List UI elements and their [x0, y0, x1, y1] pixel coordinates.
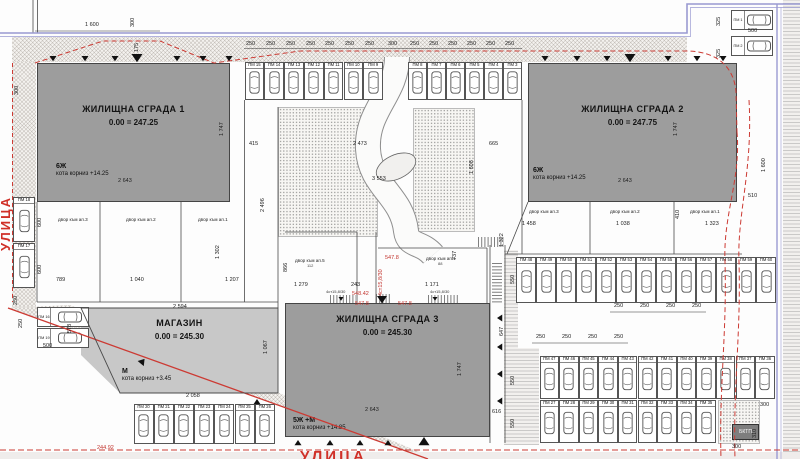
parking-stall-label: ПМ 41: [658, 357, 676, 363]
car-icon: [582, 364, 595, 394]
parking-stall: ПМ 52: [596, 257, 616, 303]
parking-stall: ПМ 16: [37, 307, 89, 327]
dimension-label: 410: [675, 210, 681, 219]
survey-elevation-mark: 4ст15,8/30: [378, 269, 384, 296]
parking-stall: ПМ 33: [657, 400, 677, 443]
parking-stall-label: ПМ 46: [560, 357, 578, 363]
dimension-label: 250: [410, 41, 419, 47]
dimension-label: 1 038: [616, 221, 630, 227]
car-icon: [620, 265, 633, 298]
parking-stall-label: ПМ 21: [155, 405, 173, 411]
shop-cornice-note: Мкота корниз +3.45: [122, 368, 171, 384]
parking-stall: ПМ 14: [264, 62, 284, 100]
parking-stall-label: ПМ 50: [557, 258, 575, 264]
parking-stall-label: ПМ 37: [737, 357, 755, 363]
yard-label: двор към ап.3: [58, 217, 88, 222]
shop-title: МАГАЗИН: [81, 318, 278, 328]
car-icon: [700, 265, 713, 298]
dimension-label: 550: [510, 376, 516, 385]
car-icon: [602, 364, 615, 394]
dimension-label: 2 473: [353, 141, 367, 147]
stair-spec-label: 4ст15,8/30: [430, 289, 449, 294]
parking-stall-label: ПМ 26: [256, 405, 274, 411]
yard-label: двор към ап.2: [610, 209, 640, 214]
dimension-label: 250: [246, 41, 255, 47]
dimension-label: 1 302: [215, 245, 221, 259]
parking-stall-label: ПМ 20: [135, 405, 153, 411]
building-1-level: 0.00 = 247.25: [38, 118, 229, 127]
parking-stall-label: ПМ 54: [637, 258, 655, 264]
car-icon: [347, 70, 360, 95]
car-icon: [520, 265, 533, 298]
parking-stall: ПМ 20: [134, 404, 154, 444]
car-icon: [238, 412, 251, 439]
parking-stall: ПМ 46: [559, 356, 579, 399]
parking-stall-label: ПМ 12: [305, 63, 323, 69]
parking-stall: ПМ 7: [427, 62, 446, 100]
dimension-label: 665: [489, 141, 498, 147]
dimension-label: 250: [614, 334, 623, 340]
car-icon: [52, 331, 88, 345]
building-shop: МАГАЗИН 0.00 = 245.30 Мкота корниз +3.45: [81, 308, 278, 393]
parking-stall-label: ПМ 56: [677, 258, 695, 264]
dimension-label: 250: [18, 319, 24, 328]
dimension-label: 2 058: [186, 393, 200, 399]
car-icon: [700, 364, 713, 394]
parking-stall: ПМ 47: [540, 356, 560, 399]
parking-stall: ПМ 44: [598, 356, 618, 399]
car-icon: [468, 70, 481, 95]
parking-stall-label: ПМ 59: [737, 258, 755, 264]
walkway-far-right: [783, 0, 800, 459]
street-label-bottom: УЛИЦА: [300, 448, 367, 459]
dimension-label: 250: [13, 296, 19, 305]
building-2-level: 0.00 = 247.75: [529, 118, 736, 127]
parking-stall-label: ПМ 6: [447, 63, 464, 69]
parking-stall-label: ПМ 31: [619, 401, 637, 407]
car-icon: [680, 265, 693, 298]
building-3-cornice-note: 5Ж +Мкота корниз +14.85: [293, 417, 346, 433]
dimension-label: 550: [510, 419, 516, 428]
dimension-label: 1 040: [130, 277, 144, 283]
building-3-level: 0.00 = 245.30: [286, 328, 489, 337]
parking-stall-label: ПМ 15: [246, 63, 264, 69]
road-bottom-strip: [0, 452, 800, 459]
car-icon: [641, 408, 654, 438]
car-icon: [720, 265, 733, 298]
parking-stall: ПМ 55: [656, 257, 676, 303]
parking-stall-label: ПМ 14: [265, 63, 283, 69]
parking-stall-label: ПМ 24: [215, 405, 233, 411]
dimension-label: 647: [499, 327, 505, 336]
car-icon: [760, 265, 773, 298]
parking-stall: ПМ 26: [255, 404, 275, 444]
car-icon: [758, 364, 771, 394]
parking-stall-label: ПМ 17: [14, 244, 34, 250]
dimension-label: 415: [249, 141, 258, 147]
parking-stall: ПМ 35: [696, 400, 716, 443]
car-icon: [218, 412, 231, 439]
parking-stall: ПМ 1: [731, 10, 773, 30]
car-icon: [739, 364, 752, 394]
dimension-label: 250: [666, 303, 675, 309]
car-icon: [660, 265, 673, 298]
parking-stall: ПМ 18: [13, 197, 35, 242]
car-icon: [660, 408, 673, 438]
dimension-label: 600: [37, 265, 43, 274]
dimension-label: 300: [760, 402, 769, 408]
parking-stall-label: ПМ 33: [658, 401, 676, 407]
car-icon: [746, 13, 772, 27]
dimension-label: 1 747: [673, 122, 679, 136]
dimension-label: 250: [325, 41, 334, 47]
parking-stall-label: ПМ 1: [732, 11, 745, 29]
parking-stall: ПМ 36: [755, 356, 775, 399]
survey-elevation-mark: 548.42: [352, 291, 369, 297]
dimension-label: 1 322: [499, 233, 505, 247]
parking-stall-label: ПМ 52: [597, 258, 615, 264]
dimension-label: 1 323: [705, 221, 719, 227]
dimension-label: 310: [752, 429, 758, 438]
parking-stall: ПМ 27: [540, 400, 560, 443]
car-icon: [641, 364, 654, 394]
car-icon: [430, 70, 443, 95]
stair-spec-label: 4ст15,8/30: [326, 289, 345, 294]
parking-stall: ПМ 42: [638, 356, 658, 399]
dimension-label: 250: [614, 303, 623, 309]
parking-stall-label: ПМ 40: [678, 357, 696, 363]
parking-stall-label: ПМ 8: [409, 63, 426, 69]
parking-stall: ПМ 56: [676, 257, 696, 303]
car-icon: [580, 265, 593, 298]
dimension-label: 250: [640, 303, 649, 309]
car-icon: [700, 408, 713, 438]
car-icon: [562, 364, 575, 394]
car-icon: [307, 70, 320, 95]
parking-stall-label: ПМ 51: [577, 258, 595, 264]
dimension-label: 1 279: [294, 282, 308, 288]
dimension-label: 1 600: [761, 158, 767, 172]
car-icon: [367, 70, 380, 95]
parking-stall: ПМ 45: [579, 356, 599, 399]
shop-level: 0.00 = 245.30: [81, 332, 278, 341]
dimension-label: 1 747: [219, 122, 225, 136]
parking-stall: ПМ 6: [446, 62, 465, 100]
building-residential-2: ЖИЛИЩНА СГРАДА 2 0.00 = 247.75 6Жкота ко…: [528, 63, 737, 202]
parking-stall-label: ПМ 43: [619, 357, 637, 363]
car-icon: [198, 412, 211, 439]
parking-stall-label: ПМ 38: [717, 357, 735, 363]
parking-stall-label: ПМ 9: [364, 63, 382, 69]
dimension-label: 300: [732, 444, 741, 450]
car-icon: [449, 70, 462, 95]
car-icon: [560, 265, 573, 298]
dimension-label: 578: [67, 324, 73, 333]
dimension-label: 250: [448, 41, 457, 47]
parking-stall: ПМ 10: [344, 62, 364, 100]
dimension-label: 1 171: [425, 282, 439, 288]
car-icon: [327, 70, 340, 95]
car-icon: [248, 70, 261, 95]
car-icon: [268, 70, 281, 95]
dimension-label: 1 600: [85, 22, 99, 28]
parking-stall: ПМ 9: [363, 62, 383, 100]
dimension-label: 510: [748, 193, 757, 199]
dimension-label: 866: [283, 263, 289, 272]
yard-label: 112: [307, 263, 313, 268]
car-icon: [640, 265, 653, 298]
car-icon: [52, 310, 88, 324]
parking-stall: ПМ 29: [579, 400, 599, 443]
building-1-cornice-note: 6Жкота корниз +14.25: [56, 163, 109, 179]
dimension-label: 1 747: [457, 362, 463, 376]
car-icon: [660, 364, 673, 394]
parking-stall-label: ПМ 29: [580, 401, 598, 407]
parking-stall: ПМ 4: [484, 62, 503, 100]
parking-stall-label: ПМ 13: [285, 63, 303, 69]
parking-stall-label: ПМ 3: [504, 63, 521, 69]
parking-stall: ПМ 31: [618, 400, 638, 443]
parking-stall-label: ПМ 23: [195, 405, 213, 411]
parking-stall: ПМ 53: [616, 257, 636, 303]
car-icon: [18, 251, 31, 283]
parking-stall: ПМ 22: [174, 404, 194, 444]
car-icon: [258, 412, 271, 439]
parking-stall: ПМ 32: [638, 400, 658, 443]
parking-stall: ПМ 38: [716, 356, 736, 399]
dimension-label: 250: [562, 334, 571, 340]
hatch-courtyard-right: [413, 108, 475, 232]
survey-elevation-mark: 547.8: [385, 255, 399, 261]
parking-stall: ПМ 41: [657, 356, 677, 399]
parking-stall: ПМ 2: [731, 36, 773, 56]
parking-stall: ПМ 40: [677, 356, 697, 399]
parking-stall-label: ПМ 35: [697, 401, 715, 407]
dimension-label: 325: [716, 49, 722, 58]
yard-label: 88: [438, 261, 442, 266]
dimension-label: 250: [505, 41, 514, 47]
parking-stall: ПМ 30: [598, 400, 618, 443]
walkway-right-b: [504, 348, 539, 445]
parking-stall-label: ПМ 48: [517, 258, 535, 264]
parking-stall: ПМ 48: [516, 257, 536, 303]
car-icon: [137, 412, 150, 439]
yard-label: двор към ап.1: [198, 217, 228, 222]
survey-elevation-mark: 547.8: [355, 301, 369, 307]
dimension-label: 300: [14, 86, 20, 95]
parking-stall-label: ПМ 55: [657, 258, 675, 264]
benchmark-elevation: 244.92: [97, 445, 114, 451]
parking-stall: ПМ 54: [636, 257, 656, 303]
dimension-label: 250: [692, 303, 701, 309]
car-icon: [680, 408, 693, 438]
parking-stall-label: ПМ 10: [345, 63, 363, 69]
car-icon: [621, 364, 634, 394]
car-icon: [562, 408, 575, 438]
parking-stall: ПМ 17: [13, 243, 35, 288]
car-icon: [543, 408, 556, 438]
parking-stall-label: ПМ 22: [175, 405, 193, 411]
parking-stall: ПМ 3: [503, 62, 522, 100]
car-icon: [18, 205, 31, 237]
hatch-courtyard-left: [278, 107, 378, 237]
parking-stall: ПМ 51: [576, 257, 596, 303]
parking-stall: ПМ 28: [559, 400, 579, 443]
dimension-label: 300: [130, 18, 136, 27]
building-3-title: ЖИЛИЩНА СГРАДА 3: [286, 314, 489, 324]
dimension-label: 175: [134, 43, 140, 52]
dimension-label: 250: [588, 334, 597, 340]
dimension-label: 250: [306, 41, 315, 47]
parking-stall: ПМ 15: [245, 62, 265, 100]
car-icon: [621, 408, 634, 438]
parking-stall-label: ПМ 58: [717, 258, 735, 264]
parking-stall-label: ПМ 5: [466, 63, 483, 69]
parking-stall-label: ПМ 47: [541, 357, 559, 363]
parking-stall: ПМ 12: [304, 62, 324, 100]
dimension-label: 3 553: [372, 176, 386, 182]
parking-stall: ПМ 49: [536, 257, 556, 303]
car-icon: [600, 265, 613, 298]
car-icon: [602, 408, 615, 438]
dimension-label: 1 458: [522, 221, 536, 227]
dimension-label: 250: [286, 41, 295, 47]
parking-stall: ПМ 59: [736, 257, 756, 303]
dimension-label: 250: [429, 41, 438, 47]
car-icon: [506, 70, 519, 95]
parking-stall-label: ПМ 16: [38, 308, 51, 326]
parking-stall: ПМ 21: [154, 404, 174, 444]
dimension-label: 250: [536, 334, 545, 340]
parking-stall: ПМ 8: [408, 62, 427, 100]
car-icon: [487, 70, 500, 95]
dimension-label: 1 067: [263, 340, 269, 354]
street-label-left: УЛИЦА: [0, 196, 13, 251]
car-icon: [411, 70, 424, 95]
car-icon: [680, 364, 693, 394]
parking-stall: ПМ 23: [194, 404, 214, 444]
parking-stall: ПМ 43: [618, 356, 638, 399]
parking-stall-label: ПМ 53: [617, 258, 635, 264]
parking-stall-label: ПМ 42: [639, 357, 657, 363]
parking-stall-label: ПМ 18: [14, 198, 34, 204]
parking-stall: ПМ 50: [556, 257, 576, 303]
dimension-label: 616: [492, 409, 501, 415]
car-icon: [719, 364, 732, 394]
car-icon: [287, 70, 300, 95]
parking-stall-label: ПМ 45: [580, 357, 598, 363]
parking-stall-label: ПМ 2: [732, 37, 745, 55]
dimension-label: 325: [716, 17, 722, 26]
parking-stall: ПМ 60: [756, 257, 776, 303]
building-residential-1: ЖИЛИЩНА СГРАДА 1 0.00 = 247.25 6Жкота ко…: [37, 63, 230, 202]
site-plan-canvas: ЖИЛИЩНА СГРАДА 1 0.00 = 247.25 6Жкота ко…: [0, 0, 800, 459]
yard-label: двор към ап.2: [126, 217, 156, 222]
parking-stall-label: ПМ 11: [325, 63, 343, 69]
parking-stall-label: ПМ 27: [541, 401, 559, 407]
dimension-label: 250: [467, 41, 476, 47]
parking-stall: ПМ 11: [324, 62, 344, 100]
parking-stall: ПМ 13: [284, 62, 304, 100]
dimension-label: 250: [266, 41, 275, 47]
car-icon: [157, 412, 170, 439]
car-icon: [543, 364, 556, 394]
parking-stall: ПМ 37: [736, 356, 756, 399]
dimension-label: 2 594: [173, 304, 187, 310]
parking-stall: ПМ 24: [214, 404, 234, 444]
dimension-label: 1 608: [469, 160, 475, 174]
parking-stall-label: ПМ 57: [697, 258, 715, 264]
dimension-label: 2 643: [365, 407, 379, 413]
building-1-title: ЖИЛИЩНА СГРАДА 1: [38, 104, 229, 114]
dimension-label: 550: [510, 275, 516, 284]
parking-stall-label: ПМ 30: [599, 401, 617, 407]
parking-stall-label: ПМ 32: [639, 401, 657, 407]
parking-stall: ПМ 5: [465, 62, 484, 100]
yard-label: двор към ап.1: [690, 209, 720, 214]
parking-stall-label: ПМ 25: [236, 405, 254, 411]
car-icon: [540, 265, 553, 298]
parking-stall-label: ПМ 4: [485, 63, 502, 69]
parking-stall-label: ПМ 7: [428, 63, 445, 69]
parking-stall-label: ПМ 39: [697, 357, 715, 363]
dimension-label: 250: [365, 41, 374, 47]
car-icon: [746, 39, 772, 53]
survey-elevation-mark: 547.8: [398, 301, 412, 307]
building-2-cornice-note: 6Жкота корниз +14.25: [533, 167, 586, 183]
parking-stall: ПМ 58: [716, 257, 736, 303]
dimension-label: 250: [345, 41, 354, 47]
parking-stall: ПМ 57: [696, 257, 716, 303]
dimension-label: 2 643: [618, 178, 632, 184]
parking-stall-label: ПМ 34: [678, 401, 696, 407]
parking-stall-label: ПМ 60: [757, 258, 775, 264]
car-icon: [740, 265, 753, 298]
parking-stall-label: ПМ 44: [599, 357, 617, 363]
parking-stall-label: ПМ 36: [756, 357, 774, 363]
dimension-label: 2 496: [260, 198, 266, 212]
dimension-label: 243: [351, 282, 360, 288]
car-icon: [177, 412, 190, 439]
dimension-label: 500: [43, 343, 52, 349]
dimension-label: 1 207: [225, 277, 239, 283]
yard-label: двор към ап.3: [529, 209, 559, 214]
parking-stall: ПМ 34: [677, 400, 697, 443]
building-2-title: ЖИЛИЩНА СГРАДА 2: [529, 104, 736, 114]
dimension-label: 789: [56, 277, 65, 283]
dimension-label: 250: [486, 41, 495, 47]
dimension-label: 600: [37, 218, 43, 227]
dimension-label: 2 643: [118, 178, 132, 184]
dimension-label: 500: [748, 28, 757, 34]
parking-stall: ПМ 39: [696, 356, 716, 399]
parking-stall: ПМ 25: [235, 404, 255, 444]
dimension-label: 300: [388, 41, 397, 47]
parking-stall-label: ПМ 49: [537, 258, 555, 264]
car-icon: [582, 408, 595, 438]
parking-stall-label: ПМ 28: [560, 401, 578, 407]
